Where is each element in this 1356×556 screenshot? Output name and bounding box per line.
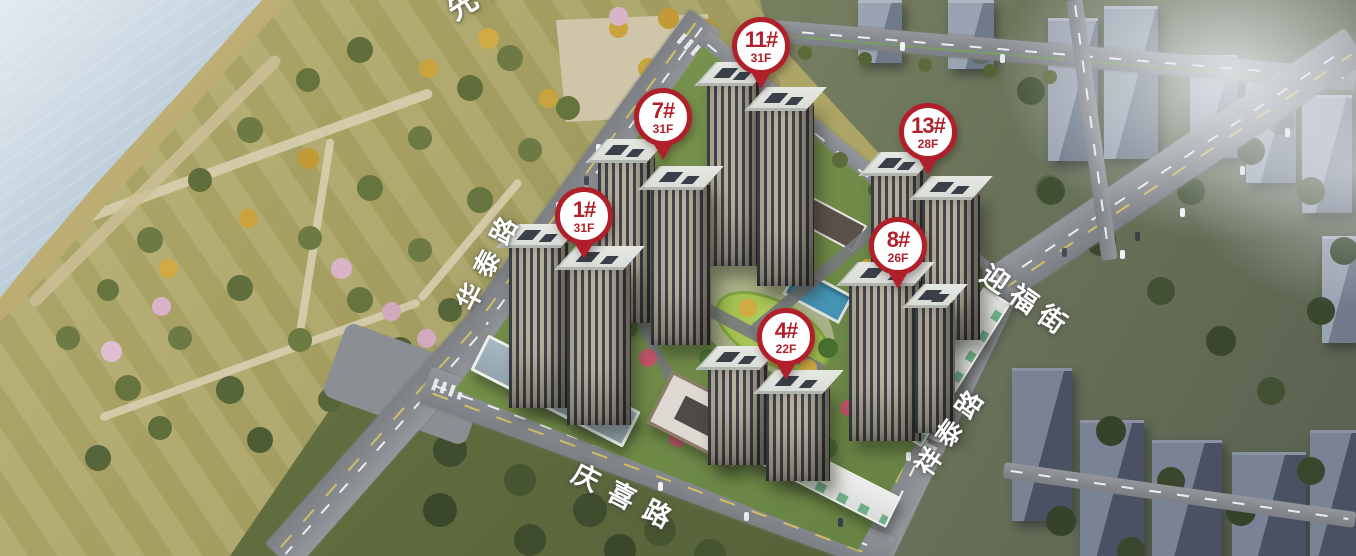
pin-floor-count: 22F xyxy=(776,343,797,355)
pin-floor-count: 31F xyxy=(751,52,772,64)
tower-11-b xyxy=(757,103,814,286)
building-pin[interactable]: 8# 26F xyxy=(869,217,927,289)
city-tower xyxy=(1104,6,1158,159)
garden-shrubs xyxy=(0,0,12,12)
city-tower xyxy=(1310,430,1356,556)
building-pin[interactable]: 11# 31F xyxy=(732,17,790,89)
pin-building-number: 1# xyxy=(573,199,595,221)
pin-building-number: 8# xyxy=(887,229,909,251)
pin-building-number: 13# xyxy=(911,115,945,137)
tower-7-b xyxy=(651,182,711,345)
pin-bubble: 7# 31F xyxy=(634,88,692,146)
aerial-site-map: 先锋创意 华泰路 迎福街 庆喜路 祥泰路 1# 31F 4# 22F 7# 31… xyxy=(0,0,1356,556)
pin-bubble: 11# 31F xyxy=(732,17,790,75)
pin-building-number: 4# xyxy=(775,320,797,342)
pin-building-number: 11# xyxy=(745,29,778,51)
building-pin[interactable]: 4# 22F xyxy=(757,308,815,380)
tower-4-b xyxy=(766,386,830,481)
city-tower xyxy=(1302,95,1352,213)
pin-floor-count: 28F xyxy=(918,138,939,150)
city-tower xyxy=(1012,368,1072,521)
pin-bubble: 1# 31F xyxy=(555,187,613,245)
tower-1-b xyxy=(567,262,631,425)
pin-bubble: 13# 28F xyxy=(899,103,957,161)
pin-floor-count: 26F xyxy=(888,252,909,264)
pin-bubble: 8# 26F xyxy=(869,217,927,275)
pin-bubble: 4# 22F xyxy=(757,308,815,366)
pin-building-number: 7# xyxy=(652,100,674,122)
building-pin[interactable]: 7# 31F xyxy=(634,88,692,160)
building-pin[interactable]: 1# 31F xyxy=(555,187,613,259)
pin-floor-count: 31F xyxy=(653,123,674,135)
building-pin[interactable]: 13# 28F xyxy=(899,103,957,175)
pin-floor-count: 31F xyxy=(574,222,595,234)
city-tower xyxy=(1322,236,1356,343)
